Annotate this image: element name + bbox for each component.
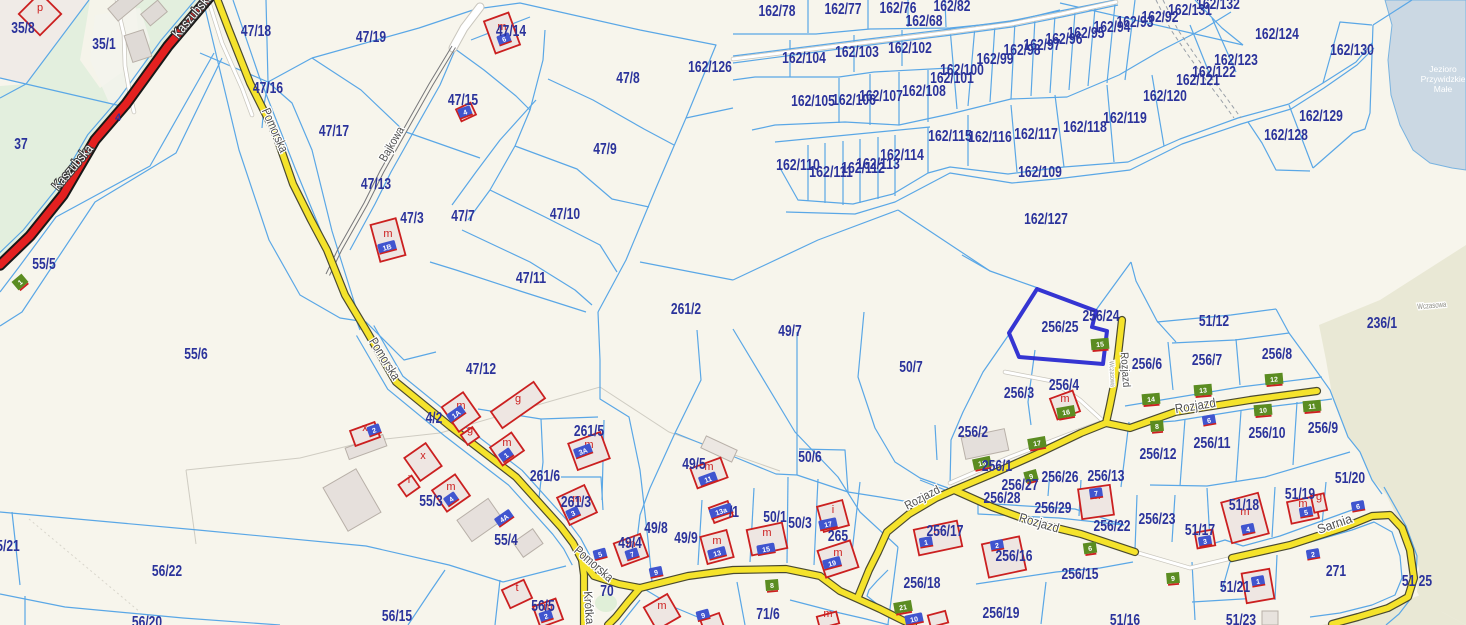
svg-text:4/2: 4/2: [426, 410, 443, 427]
svg-text:162/101: 162/101: [930, 70, 974, 87]
svg-text:162/78: 162/78: [759, 3, 796, 20]
svg-text:162/130: 162/130: [1330, 42, 1374, 59]
svg-text:50/1: 50/1: [763, 509, 787, 526]
svg-text:p: p: [37, 2, 43, 14]
svg-text:265: 265: [828, 528, 848, 545]
svg-text:i: i: [408, 474, 410, 486]
svg-text:162/119: 162/119: [1103, 110, 1147, 127]
svg-text:162/129: 162/129: [1299, 108, 1343, 125]
svg-text:47/10: 47/10: [550, 206, 580, 223]
svg-text:47/14: 47/14: [496, 23, 526, 40]
svg-text:56/15: 56/15: [382, 608, 412, 625]
svg-text:162/124: 162/124: [1255, 26, 1299, 43]
svg-text:Rozjazd: Rozjazd: [1118, 352, 1132, 388]
svg-text:256/4: 256/4: [1049, 377, 1079, 394]
svg-text:51 25: 51 25: [1402, 573, 1432, 590]
svg-text:m: m: [446, 481, 455, 493]
svg-text:/1: /1: [729, 504, 739, 521]
svg-text:5/21: 5/21: [0, 538, 20, 555]
svg-text:9: 9: [1171, 576, 1176, 583]
svg-text:47/8: 47/8: [616, 70, 640, 87]
svg-text:55/5: 55/5: [32, 256, 56, 273]
svg-text:256/1: 256/1: [982, 458, 1012, 475]
svg-text:47/13: 47/13: [361, 176, 391, 193]
svg-text:51/19: 51/19: [1285, 486, 1315, 503]
svg-text:256/19: 256/19: [983, 605, 1020, 622]
svg-text:35/8: 35/8: [11, 20, 35, 37]
svg-text:47/9: 47/9: [593, 141, 617, 158]
svg-text:56/22: 56/22: [152, 563, 182, 580]
svg-text:256/7: 256/7: [1192, 352, 1222, 369]
svg-text:47/3: 47/3: [400, 210, 424, 227]
svg-text:256/26: 256/26: [1042, 469, 1079, 486]
svg-text:261/3: 261/3: [561, 494, 591, 511]
svg-text:256/12: 256/12: [1140, 446, 1177, 463]
svg-text:55/4: 55/4: [494, 532, 518, 549]
svg-text:m: m: [1060, 393, 1069, 405]
svg-text:256/17: 256/17: [927, 523, 964, 540]
svg-text:256/28: 256/28: [984, 490, 1021, 507]
svg-text:m: m: [823, 608, 832, 620]
svg-text:15: 15: [762, 546, 771, 554]
svg-text:256/22: 256/22: [1094, 518, 1131, 535]
svg-text:55/6: 55/6: [184, 346, 208, 363]
svg-text:162/107: 162/107: [859, 88, 903, 105]
svg-text:49/4: 49/4: [618, 535, 642, 552]
svg-text:m: m: [657, 600, 666, 612]
svg-text:162/127: 162/127: [1024, 211, 1068, 228]
svg-text:49/7: 49/7: [778, 323, 802, 340]
svg-text:271: 271: [1326, 563, 1346, 580]
svg-text:55/3: 55/3: [419, 493, 443, 510]
svg-text:47/12: 47/12: [466, 361, 496, 378]
svg-text:47/11: 47/11: [516, 270, 546, 287]
svg-text:256/6: 256/6: [1132, 356, 1162, 373]
svg-text:162/109: 162/109: [1018, 164, 1062, 181]
svg-text:256/18: 256/18: [904, 575, 941, 592]
svg-text:47/18: 47/18: [241, 23, 271, 40]
svg-text:56/20: 56/20: [132, 614, 162, 625]
svg-text:162/132: 162/132: [1196, 0, 1240, 13]
svg-text:Krótka: Krótka: [581, 591, 597, 625]
svg-text:m: m: [712, 535, 721, 547]
svg-text:m: m: [383, 228, 392, 240]
svg-text:50/6: 50/6: [798, 449, 822, 466]
svg-text:51/16: 51/16: [1110, 612, 1140, 625]
svg-text:m: m: [704, 461, 713, 473]
svg-text:256/9: 256/9: [1308, 420, 1338, 437]
svg-text:49/5: 49/5: [682, 456, 706, 473]
svg-text:51/23: 51/23: [1226, 612, 1256, 625]
svg-text:256/16: 256/16: [996, 548, 1033, 565]
svg-text:11: 11: [1308, 403, 1316, 411]
svg-text:10: 10: [1259, 407, 1267, 415]
svg-text:g: g: [467, 424, 473, 436]
svg-text:m: m: [502, 437, 511, 449]
svg-text:162/68: 162/68: [906, 13, 943, 30]
svg-text:256/23: 256/23: [1139, 511, 1176, 528]
svg-text:4: 4: [115, 112, 122, 124]
svg-text:8: 8: [770, 583, 775, 590]
svg-text:17: 17: [1033, 440, 1042, 448]
svg-text:Wczasowa: Wczasowa: [1107, 361, 1115, 387]
svg-text:162/118: 162/118: [1063, 119, 1107, 136]
svg-text:47/16: 47/16: [253, 80, 283, 97]
svg-text:256/25: 256/25: [1042, 319, 1079, 336]
svg-text:51/18: 51/18: [1229, 497, 1259, 514]
svg-text:g: g: [515, 393, 521, 405]
svg-text:162/116: 162/116: [968, 129, 1012, 146]
svg-text:37: 37: [14, 136, 27, 153]
svg-text:162/117: 162/117: [1014, 126, 1058, 143]
svg-text:261/5: 261/5: [574, 423, 604, 440]
svg-text:162/102: 162/102: [888, 40, 932, 57]
svg-text:35/1: 35/1: [92, 36, 116, 53]
svg-text:14: 14: [1147, 396, 1155, 404]
svg-text:256/10: 256/10: [1249, 425, 1286, 442]
svg-text:Przywidzkie: Przywidzkie: [1421, 74, 1466, 84]
svg-text:8: 8: [1155, 424, 1160, 431]
svg-text:50/7: 50/7: [899, 359, 923, 376]
svg-text:t: t: [515, 582, 518, 594]
svg-text:261/2: 261/2: [671, 301, 701, 318]
svg-text:x: x: [420, 450, 426, 462]
svg-text:70: 70: [600, 583, 613, 600]
svg-text:49/9: 49/9: [674, 530, 698, 547]
svg-text:49/8: 49/8: [644, 520, 668, 537]
svg-text:47/17: 47/17: [319, 123, 349, 140]
svg-text:256/8: 256/8: [1262, 346, 1292, 363]
svg-text:g: g: [1316, 491, 1322, 503]
svg-text:16: 16: [1062, 409, 1071, 417]
svg-text:13: 13: [1199, 387, 1207, 395]
svg-text:Małe: Małe: [1434, 84, 1453, 94]
svg-text:256/13: 256/13: [1088, 468, 1125, 485]
svg-text:256/24: 256/24: [1083, 308, 1120, 325]
svg-text:256/2: 256/2: [958, 424, 988, 441]
svg-text:261/6: 261/6: [530, 468, 560, 485]
svg-text:m: m: [762, 527, 771, 539]
svg-text:i: i: [832, 504, 834, 516]
svg-text:162/104: 162/104: [782, 50, 826, 67]
svg-text:162/121: 162/121: [1176, 72, 1220, 89]
svg-text:47/19: 47/19: [356, 29, 386, 46]
svg-text:162/128: 162/128: [1264, 127, 1308, 144]
svg-text:162/115: 162/115: [928, 128, 972, 145]
svg-text:256/11: 256/11: [1194, 435, 1231, 452]
svg-text:15: 15: [1096, 341, 1104, 349]
svg-text:Jezioro: Jezioro: [1429, 64, 1457, 74]
svg-text:51/12: 51/12: [1199, 313, 1229, 330]
svg-text:162/103: 162/103: [835, 44, 879, 61]
svg-text:51/20: 51/20: [1335, 470, 1365, 487]
svg-text:12: 12: [1270, 376, 1278, 384]
svg-text:71/6: 71/6: [756, 606, 780, 623]
svg-text:50/3: 50/3: [788, 515, 812, 532]
svg-text:47/7: 47/7: [451, 208, 475, 225]
svg-text:162/105: 162/105: [791, 93, 835, 110]
svg-text:162/126: 162/126: [688, 59, 732, 76]
svg-text:51/21: 51/21: [1220, 579, 1250, 596]
svg-text:56/5: 56/5: [531, 598, 555, 615]
svg-text:47/15: 47/15: [448, 92, 478, 109]
svg-text:162/113: 162/113: [856, 156, 900, 173]
svg-text:256/3: 256/3: [1004, 385, 1034, 402]
svg-text:256/15: 256/15: [1062, 566, 1099, 583]
svg-text:51/17: 51/17: [1185, 522, 1215, 539]
svg-text:21: 21: [899, 604, 908, 612]
svg-text:162/120: 162/120: [1143, 88, 1187, 105]
svg-text:236/1: 236/1: [1367, 315, 1397, 332]
svg-text:162/77: 162/77: [825, 1, 862, 18]
